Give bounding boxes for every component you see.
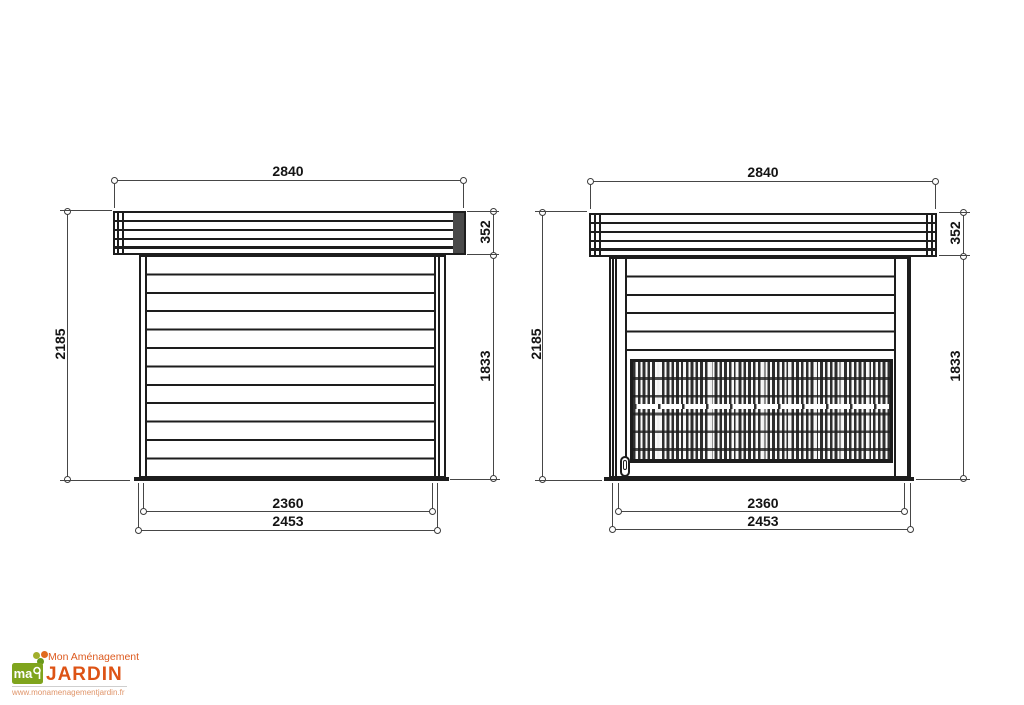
logo-divider xyxy=(12,686,127,687)
corner-trim-line xyxy=(145,257,147,476)
dimension-endpoint xyxy=(615,508,622,515)
roof-board-line xyxy=(591,240,935,242)
extension-line xyxy=(60,210,112,211)
dimension-line xyxy=(114,180,463,181)
logo-monogram-badge: ma xyxy=(12,663,43,684)
dimension-endpoint xyxy=(587,178,594,185)
dimension-line xyxy=(590,181,935,182)
extension-line xyxy=(535,480,602,481)
door-handle-keyhole xyxy=(623,460,627,470)
corner-trim-line xyxy=(894,259,896,476)
dimension-endpoint xyxy=(434,527,441,534)
extension-line xyxy=(114,184,115,208)
corner-trim-line xyxy=(625,259,627,476)
dimension-endpoint xyxy=(609,526,616,533)
dim-label-roof-thickness: 352 xyxy=(478,220,492,243)
corner-trim-line xyxy=(434,257,436,476)
dimension-endpoint xyxy=(907,526,914,533)
dimension-endpoint xyxy=(460,177,467,184)
wall-planks xyxy=(147,257,434,476)
extension-line xyxy=(535,211,587,212)
dim-label-overall-height: 2185 xyxy=(529,328,543,359)
extension-line xyxy=(138,483,139,533)
roof-board-line xyxy=(115,229,464,231)
dimension-endpoint xyxy=(932,178,939,185)
dim-label-wall-height: 1833 xyxy=(948,350,962,381)
extension-line xyxy=(467,254,499,255)
dimension-endpoint xyxy=(140,508,147,515)
dimension-line xyxy=(143,511,432,512)
dimension-endpoint xyxy=(901,508,908,515)
extension-line xyxy=(916,479,970,480)
logo-tagline: Mon Aménagement xyxy=(48,651,139,663)
roof-board-line xyxy=(591,231,935,233)
corner-trim-line xyxy=(615,259,617,476)
roof-board-line xyxy=(591,222,935,224)
roof-end-cap-line xyxy=(122,213,124,253)
dimension-endpoint xyxy=(135,527,142,534)
extension-line xyxy=(437,483,438,533)
roof-end-cap-line xyxy=(117,213,119,253)
corner-trim-line xyxy=(907,259,909,476)
dimension-endpoint xyxy=(111,177,118,184)
logo-monogram: ma xyxy=(14,667,33,680)
extension-line xyxy=(463,184,464,208)
technical-drawing-canvas: 2840 2185 352 1833 xyxy=(0,0,1024,705)
extension-line xyxy=(60,480,130,481)
roof-fascia-line xyxy=(591,248,935,251)
roof-end-cap-line xyxy=(926,215,928,255)
lattice-rail xyxy=(634,404,889,409)
dimension-line xyxy=(612,529,910,530)
extension-line xyxy=(939,255,970,256)
dim-label-roof-thickness: 352 xyxy=(948,221,962,244)
extension-line xyxy=(450,479,500,480)
floor-sill xyxy=(134,477,449,481)
logo-website: www.monamenagementjardin.fr xyxy=(12,688,125,697)
dim-label-inner-width: 2360 xyxy=(747,496,778,510)
dimension-line xyxy=(963,212,964,478)
dim-label-overall-width: 2840 xyxy=(747,165,778,179)
roof-end-cap-line xyxy=(594,215,596,255)
dim-label-overall-height: 2185 xyxy=(53,328,67,359)
dim-label-wall-height: 1833 xyxy=(478,350,492,381)
roof-end-cap-line xyxy=(599,215,601,255)
dimension-line xyxy=(618,511,904,512)
roof-fascia-line xyxy=(115,246,464,249)
dim-label-overall-width: 2840 xyxy=(272,164,303,178)
floor-sill xyxy=(604,477,914,481)
extension-line xyxy=(590,185,591,209)
roof-board-line xyxy=(115,220,464,222)
roof-end-cap-dark xyxy=(453,213,464,253)
extension-line xyxy=(910,483,911,532)
extension-line xyxy=(939,212,970,213)
dim-label-outer-width: 2453 xyxy=(272,514,303,528)
corner-trim-line xyxy=(612,259,614,476)
logo-sprout-icon xyxy=(33,666,41,681)
clover-icon xyxy=(41,651,48,658)
wall-planks-upper xyxy=(627,259,894,360)
logo-brand: JARDIN xyxy=(46,664,123,686)
extension-line xyxy=(935,185,936,209)
corner-trim-line xyxy=(438,257,440,476)
roof-board-line xyxy=(115,238,464,240)
extension-line xyxy=(612,483,613,532)
roof-end-cap-line xyxy=(931,215,933,255)
dim-label-inner-width: 2360 xyxy=(272,496,303,510)
dimension-line xyxy=(138,530,437,531)
lattice-panel xyxy=(630,359,893,463)
dimension-endpoint xyxy=(429,508,436,515)
extension-line xyxy=(467,211,499,212)
dim-label-outer-width: 2453 xyxy=(747,514,778,528)
